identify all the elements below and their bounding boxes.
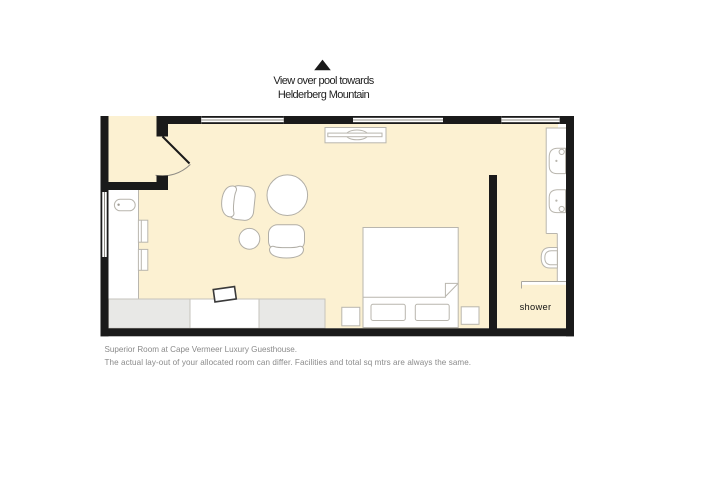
svg-text:View over pool towards: View over pool towards — [273, 75, 374, 87]
svg-text:Helderberg Mountain: Helderberg Mountain — [278, 89, 370, 101]
svg-text:shower: shower — [520, 302, 552, 312]
svg-text:Superior Room at Cape Vermeer: Superior Room at Cape Vermeer Luxury Gue… — [105, 345, 298, 354]
svg-text:The actual lay-out of your all: The actual lay-out of your allocated roo… — [105, 358, 472, 367]
